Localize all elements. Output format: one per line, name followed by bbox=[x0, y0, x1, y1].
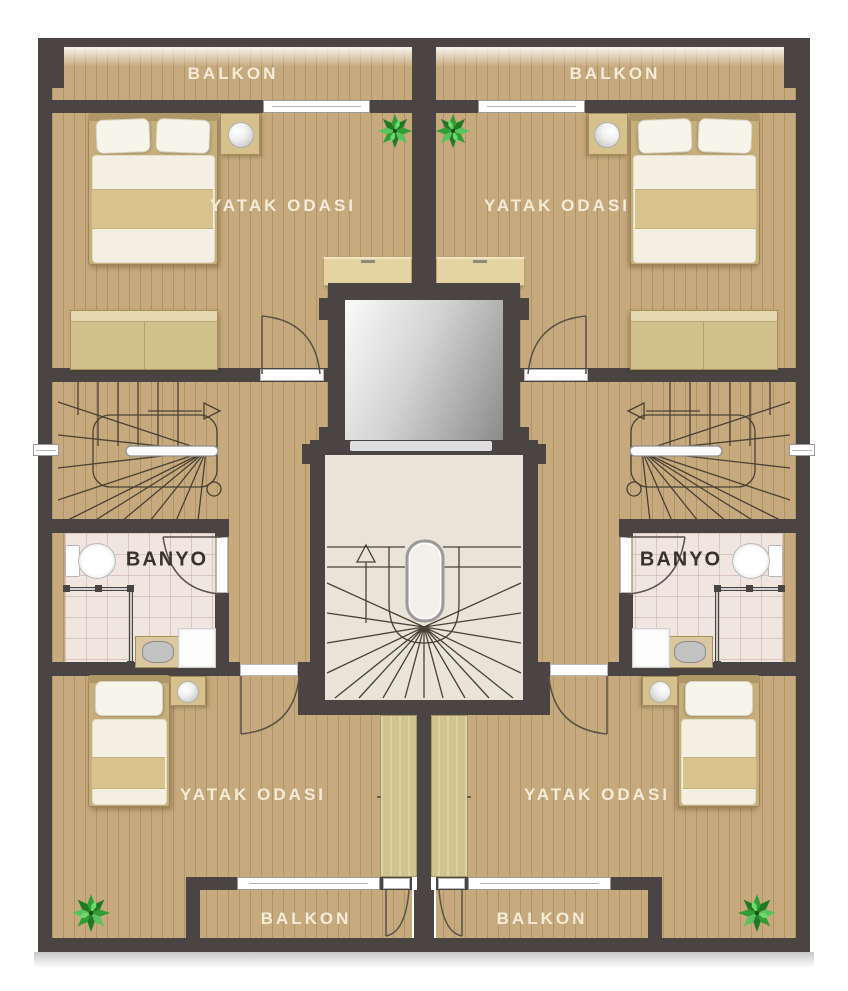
stair-newel bbox=[407, 541, 443, 621]
wall-nub bbox=[319, 298, 328, 320]
label-bedroom-top-left: YATAK ODASI bbox=[210, 196, 356, 216]
elevator-icon bbox=[345, 300, 503, 440]
wall-nub bbox=[302, 444, 310, 464]
label-bathroom-right: BANYO bbox=[640, 549, 722, 572]
label-bedroom-bottom-left: YATAK ODASI bbox=[180, 785, 326, 805]
label-balcony-top-left: BALKON bbox=[188, 64, 279, 84]
party-wall-bottom bbox=[417, 700, 431, 890]
label-bedroom-top-right: YATAK ODASI bbox=[484, 196, 630, 216]
floor-plan: BALKON BALKON YATAK ODASI YATAK ODASI BA… bbox=[0, 0, 848, 991]
label-balcony-bottom-right: BALKON bbox=[497, 909, 588, 929]
balcony-divider-wall bbox=[414, 890, 434, 952]
plan-shadow bbox=[34, 952, 814, 968]
party-wall-top bbox=[412, 38, 436, 300]
label-bedroom-bottom-right: YATAK ODASI bbox=[524, 785, 670, 805]
label-balcony-top-right: BALKON bbox=[570, 64, 661, 84]
elevator-sill bbox=[350, 441, 492, 451]
label-balcony-bottom-left: BALKON bbox=[261, 909, 352, 929]
wall-nub bbox=[538, 444, 546, 464]
central-stair bbox=[325, 455, 523, 700]
wall-nub bbox=[520, 298, 529, 320]
label-bathroom-left: BANYO bbox=[126, 549, 208, 572]
shower-glass-icon bbox=[714, 585, 785, 668]
